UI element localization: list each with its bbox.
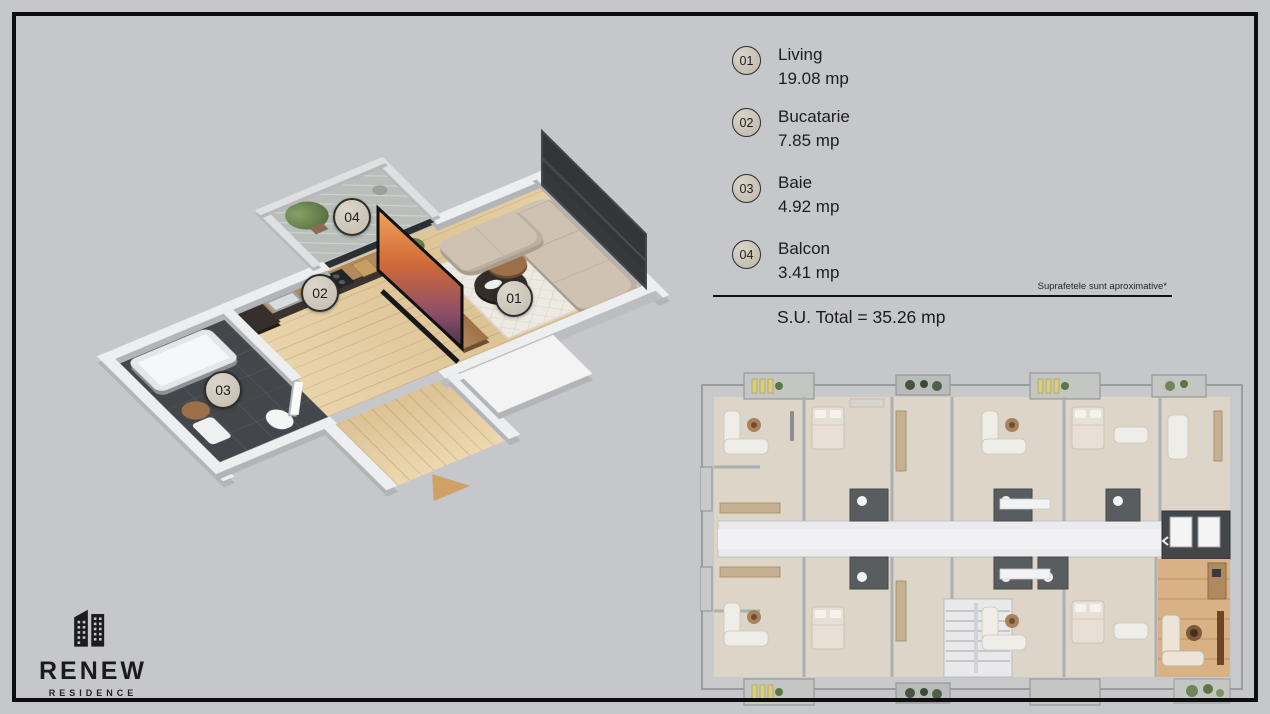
legend-item-living: 01 Living 19.08 mp: [732, 46, 849, 88]
room-marker-bathroom: 03: [204, 371, 242, 409]
highlight-tv-console: [1217, 611, 1224, 665]
legend-divider: [713, 295, 1172, 297]
room-name: Bucatarie: [778, 108, 850, 126]
room-area: 19.08 mp: [778, 70, 849, 88]
legend-badge: 01: [732, 46, 761, 75]
room-name: Balcon: [778, 240, 839, 258]
room-area: 4.92 mp: [778, 198, 839, 216]
marker-label: 03: [215, 382, 231, 398]
brand-logo: RENEW RESIDENCE: [38, 602, 148, 698]
elevator-car: [1198, 517, 1220, 547]
highlight-kitchen: [1208, 563, 1226, 599]
approximation-note: Suprafetele sunt aproximative*: [1038, 281, 1167, 292]
bottom-balconies: [744, 679, 1100, 705]
left-balcony-bottom: [700, 567, 712, 611]
buildings-icon: [67, 602, 119, 650]
room-marker-living: 01: [495, 279, 533, 317]
apartment-3d-plan: [40, 114, 745, 556]
logo-subtitle: RESIDENCE: [38, 688, 148, 698]
room-name: Baie: [778, 174, 839, 192]
room-name: Living: [778, 46, 849, 64]
elevator-lobby: [1162, 511, 1230, 559]
room-marker-kitchen: 02: [301, 274, 339, 312]
room-area: 3.41 mp: [778, 264, 839, 282]
room-area: 7.85 mp: [778, 132, 850, 150]
building-floor-plan: [700, 371, 1252, 707]
marker-label: 01: [506, 290, 522, 306]
total-area: S.U. Total = 35.26 mp: [777, 307, 945, 328]
legend-badge: 04: [732, 240, 761, 269]
logo-name: RENEW: [38, 657, 148, 686]
corridor-runner: [718, 529, 1216, 549]
room-marker-balcony: 04: [333, 198, 371, 236]
marker-label: 02: [312, 285, 328, 301]
legend-item-baie: 03 Baie 4.92 mp: [732, 174, 839, 216]
legend-item-bucatarie: 02 Bucatarie 7.85 mp: [732, 108, 850, 150]
left-balcony-top: [700, 467, 712, 511]
legend-item-balcon: 04 Balcon 3.41 mp: [732, 240, 839, 282]
marker-label: 04: [344, 209, 360, 225]
elevator-car: [1170, 517, 1192, 547]
legend-badge: 03: [732, 174, 761, 203]
legend-badge: 02: [732, 108, 761, 137]
floorplan-poster: 01 02 03 04 01 Living 19.08 mp 02 Bucata…: [0, 0, 1270, 714]
